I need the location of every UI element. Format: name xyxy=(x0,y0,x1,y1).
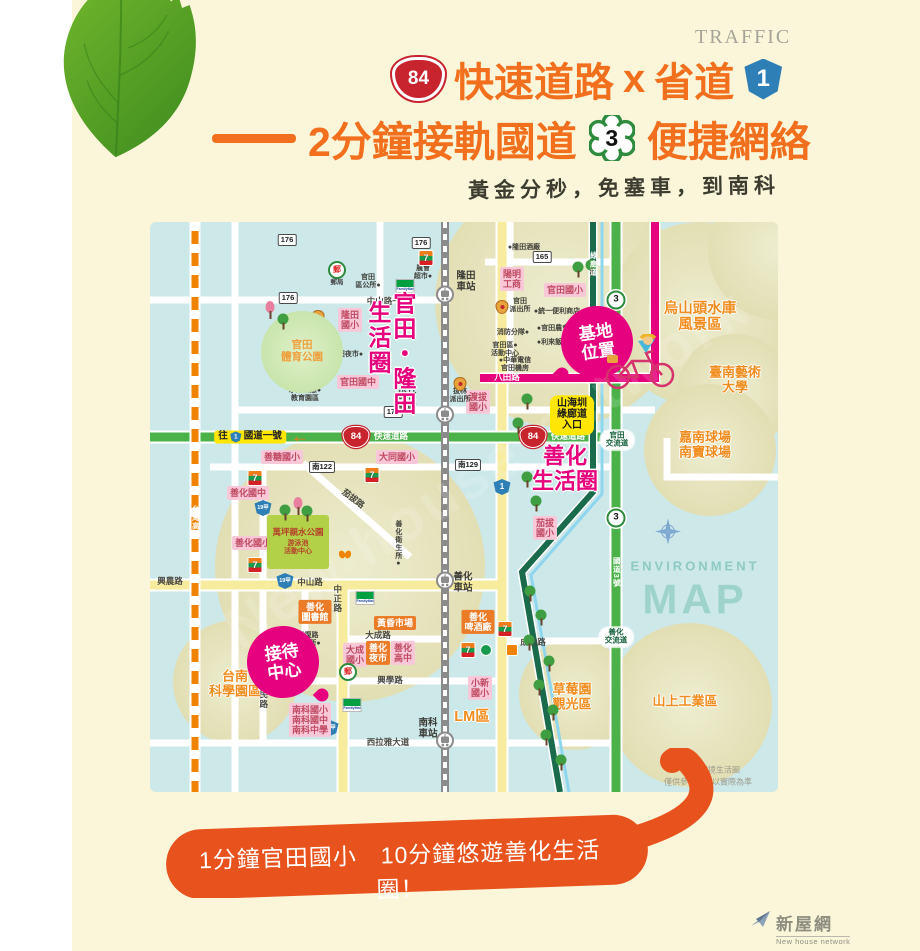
tree-icon xyxy=(277,314,290,331)
xiaoxin-elementary: 小新國小 xyxy=(468,676,492,700)
shanhua-brewery: 善化啤酒廠 xyxy=(461,610,494,634)
dusk-market: 黃昏市場 xyxy=(374,616,416,630)
to-freeway-1-sign: 往1國道一號 xyxy=(214,431,286,444)
environment-label: ENVIRONMENT xyxy=(630,560,759,575)
train-station-icon xyxy=(436,572,454,595)
familymart-icon: FamilyMart xyxy=(356,591,375,605)
headline-line1: 84 快速道路 x 省道 1 xyxy=(392,50,783,108)
train-station-icon xyxy=(436,286,454,309)
brand-name: 新屋網 xyxy=(776,910,850,935)
xingnong-road-label: 興農路 xyxy=(157,577,183,587)
dash-decoration xyxy=(212,134,296,143)
chunghwa-telecom: ●中華電信官田機房 xyxy=(499,357,531,373)
shanhua-night-market: 善化夜市 xyxy=(366,641,390,665)
datong-elementary: 大同國小 xyxy=(376,450,418,464)
road-badge-176: 176 xyxy=(278,234,297,246)
seven-eleven-icon: 7 xyxy=(498,621,513,637)
nanke-schools: 南科國小南科國中南科中學 xyxy=(289,703,331,737)
shanhua-senior-high: 善化高中 xyxy=(391,641,415,665)
traffic-eyebrow: TRAFFIC xyxy=(695,26,791,49)
guantian-police-station: 官田派出所 xyxy=(510,298,531,314)
greenway-entrance-balloon: 山海圳綠廊道入口 xyxy=(550,395,594,435)
seven-eleven-icon: 7 xyxy=(365,467,380,483)
seven-eleven-icon: 7 xyxy=(419,250,434,266)
zhongshan-road-label: 中山路 xyxy=(297,578,323,588)
chianan-ballparks: 嘉南球場南寶球場 xyxy=(679,430,731,459)
xilaya-blvd-label: 西拉雅大道 xyxy=(367,738,410,748)
longtian-station-label: 隆田車站 xyxy=(456,271,475,292)
guantian-longtian-area: 官田・隆田 xyxy=(389,292,415,417)
bicycle-girl-illustration xyxy=(600,334,680,395)
brand-logo: 新屋網 New house network xyxy=(750,910,850,946)
batian-road-label: 八田路 xyxy=(494,373,520,383)
shanhua-life-circle: 善化生活圈 xyxy=(532,444,598,493)
tree-icon xyxy=(535,610,548,627)
post-office-icon: 郵 xyxy=(339,663,357,681)
tree-icon xyxy=(530,496,543,513)
headline-x: x xyxy=(623,57,645,102)
shield-84-icon: 84 xyxy=(392,57,445,101)
life-circle-label: 生活圈 xyxy=(364,301,390,376)
tree-icon xyxy=(523,635,536,652)
seven-eleven-icon: 7 xyxy=(248,470,263,486)
left-arrow-icon: ← xyxy=(291,426,309,446)
nanke-station-label: 南科車站 xyxy=(418,718,437,739)
longtian-distillery: ●隆田酒廠 xyxy=(508,244,540,252)
tree-icon xyxy=(543,656,556,673)
guantian-interchange: 官田交流道 xyxy=(601,431,634,450)
road-badge-176: 176 xyxy=(412,237,431,249)
shantang-elementary: 善糖國小 xyxy=(261,450,303,464)
guantian-junior-high: 官田國中 xyxy=(337,375,379,389)
store-icon xyxy=(480,644,492,656)
familymart-icon: FamilyMart xyxy=(343,698,362,712)
train-station-icon xyxy=(436,406,454,429)
brand-subtitle: New house network xyxy=(776,936,850,946)
xingxue-road-label: 興學路 xyxy=(377,676,403,686)
shanhua-junior-high: 善化國中 xyxy=(227,486,269,500)
guantian-district-office: 官田區公所● xyxy=(355,274,380,290)
shanhua-library: 善化圖書館 xyxy=(298,600,331,624)
tree-icon xyxy=(524,586,537,603)
guantian-elementary: 官田國小 xyxy=(544,283,586,297)
headline-network: 便捷網絡 xyxy=(647,108,811,168)
tree-icon xyxy=(540,730,553,747)
butterfly-icon xyxy=(339,551,351,560)
map-label: MAP xyxy=(642,575,747,622)
bubble-text: 1分鐘官田國小 10分鐘悠遊善化生活圈！ xyxy=(179,830,621,909)
flower-tree-icon xyxy=(264,301,277,319)
shanshang-industrial-area: 山上工業區 xyxy=(652,695,717,710)
compass-icon xyxy=(655,519,681,550)
farmers-supermarket: 農會超市● xyxy=(414,265,432,281)
wushantou-reservoir: 烏山頭水庫風景區 xyxy=(664,301,737,333)
road-badge-176: 176 xyxy=(279,292,298,304)
shanhua-interchange: 善化交流道 xyxy=(600,628,633,647)
seven-eleven-icon: 7 xyxy=(461,642,476,658)
tree-icon xyxy=(512,418,525,435)
hsr-label: 台灣高鐵 xyxy=(191,505,199,539)
yangming-vocational: 陽明工商 xyxy=(500,267,524,291)
tree-icon xyxy=(521,472,534,489)
shield-highway-3: 3 xyxy=(607,291,626,310)
health-center-label: 善化衛生所● xyxy=(394,520,402,568)
tree-icon xyxy=(572,262,585,279)
tainan-art-university: 臺南藝術大學 xyxy=(709,365,761,394)
road-badge-south-122: 南122 xyxy=(309,461,335,473)
lm-area: LM區 xyxy=(454,709,489,725)
highway3-label: 國道3號 xyxy=(612,557,620,588)
longtian-elementary: 隆田國小 xyxy=(338,308,362,332)
guantian-sports-park: 官田體育公園 xyxy=(261,311,343,393)
road-badge-165: 165 xyxy=(533,251,552,263)
road-badge-south-129: 南129 xyxy=(455,459,481,471)
headline-expressway: 快速道路 xyxy=(454,50,614,108)
tree-icon xyxy=(547,705,560,722)
fire-brigade: 消防分隊● xyxy=(497,329,529,337)
post-office-icon: 郵郵局 xyxy=(328,261,346,279)
qieba-elementary: 茄拔國小 xyxy=(533,516,557,540)
expressway-label: 快速道路 xyxy=(374,432,408,442)
flower-tree-icon xyxy=(292,497,305,515)
highway-3-shield-icon: 3 xyxy=(589,115,635,161)
tree-icon xyxy=(533,680,546,697)
handwritten-tagline: 黃金分秒，免塞車，到南科 xyxy=(468,169,780,204)
sail-icon xyxy=(750,910,772,928)
headline-line2: 2分鐘接軌國道 3 便捷網絡 xyxy=(212,108,811,168)
environment-map: New house network 176176176165171南122南12… xyxy=(150,222,778,792)
tree-icon xyxy=(279,505,292,522)
greenway-label: 綠廊道 xyxy=(589,251,597,277)
market-icon xyxy=(506,644,518,656)
zhongzheng-road-label: 中正路 xyxy=(332,585,342,614)
headline-2min: 2分鐘接軌國道 xyxy=(308,108,577,168)
headline-provincial: 省道 xyxy=(654,50,734,108)
tree-icon xyxy=(521,394,534,411)
wanping-water-park: 萬坪親水公園游泳池活動中心 xyxy=(267,515,329,569)
dacheng-road-label: 大成路 xyxy=(365,631,391,641)
leaf-image xyxy=(40,0,214,179)
guantian-activity-center: 官田區●活動中心 xyxy=(491,342,519,358)
shield-highway-3: 3 xyxy=(607,509,626,528)
shanhua-station-label: 善化車站 xyxy=(453,572,472,593)
shield-1-icon: 1 xyxy=(743,59,783,100)
seven-eleven-icon: 7 xyxy=(248,557,263,573)
